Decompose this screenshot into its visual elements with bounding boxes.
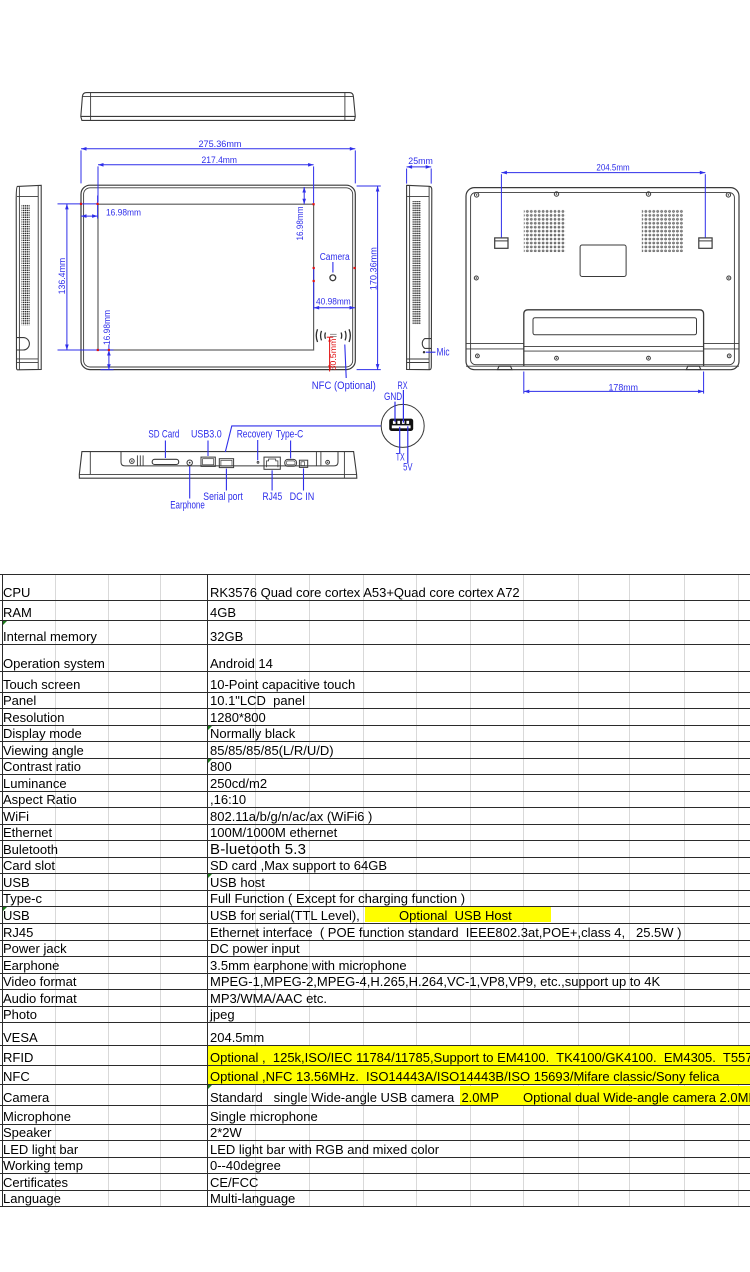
- svg-text:Earphone: Earphone: [170, 500, 205, 512]
- svg-text:178mm: 178mm: [609, 382, 639, 393]
- svg-text:USB3.0: USB3.0: [191, 428, 222, 440]
- svg-text:Mic: Mic: [437, 347, 450, 359]
- svg-text:30.5mm: 30.5mm: [328, 339, 338, 371]
- svg-text:SD Card: SD Card: [148, 428, 179, 440]
- svg-text:5V: 5V: [403, 462, 413, 474]
- svg-text:204.5mm: 204.5mm: [596, 162, 629, 173]
- svg-text:170.36mm: 170.36mm: [368, 247, 379, 290]
- svg-text:136.4mm: 136.4mm: [57, 258, 68, 295]
- svg-text:Serial port: Serial port: [203, 491, 243, 503]
- svg-text:16.98mm: 16.98mm: [295, 206, 306, 240]
- svg-text:40.98mm: 40.98mm: [316, 297, 351, 308]
- svg-text:RX: RX: [398, 380, 408, 392]
- svg-text:NFC (Optional): NFC (Optional): [312, 380, 376, 392]
- svg-text:217.4mm: 217.4mm: [202, 155, 238, 166]
- svg-text:Recovery: Recovery: [237, 428, 273, 440]
- svg-text:16.98mm: 16.98mm: [106, 207, 141, 218]
- svg-text:DC IN: DC IN: [290, 491, 315, 503]
- svg-text:16.98mm: 16.98mm: [102, 310, 113, 345]
- svg-text:Camera: Camera: [320, 252, 350, 263]
- svg-text:RJ45: RJ45: [263, 491, 283, 503]
- svg-text:GND: GND: [384, 391, 402, 403]
- svg-text:Type-C: Type-C: [276, 428, 303, 440]
- svg-text:275.36mm: 275.36mm: [199, 139, 242, 150]
